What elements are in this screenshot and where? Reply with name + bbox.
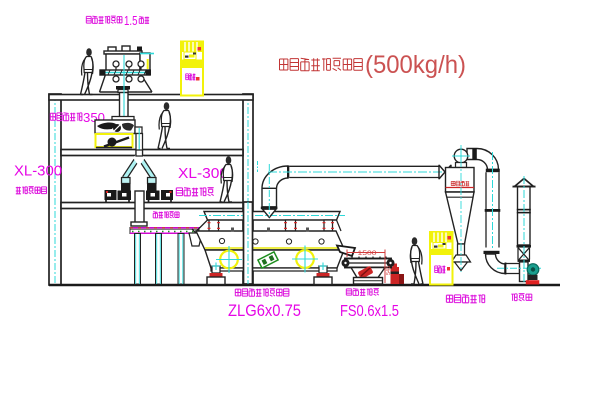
svg-text:1.5: 1.5 <box>124 14 138 28</box>
svg-text:1500: 1500 <box>358 251 378 257</box>
svg-text:ZLG6x0.75: ZLG6x0.75 <box>228 302 301 320</box>
svg-text:XL-300: XL-300 <box>14 163 62 180</box>
svg-text:FS0.6x1.5: FS0.6x1.5 <box>340 303 399 320</box>
svg-text:545: 545 <box>386 266 392 275</box>
svg-text:(500kg/h): (500kg/h) <box>365 51 466 79</box>
